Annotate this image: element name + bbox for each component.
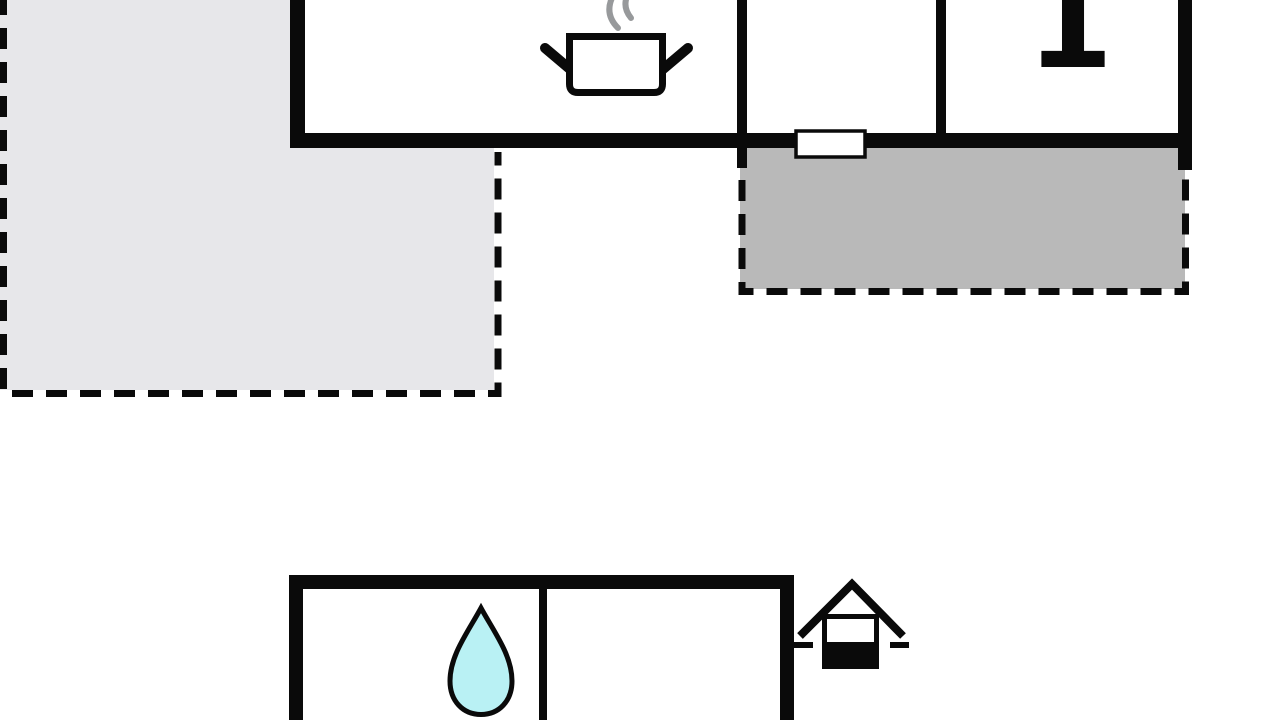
outbuilding [289, 575, 794, 720]
floor-plan: 1 [0, 0, 1280, 720]
pot-body [570, 37, 663, 93]
wall-left [290, 0, 305, 148]
room-number-label: 1 [1027, 0, 1113, 97]
entrance-house-base [822, 642, 879, 668]
outbuilding-wall-top [289, 575, 794, 589]
wall-interior-b [936, 0, 946, 133]
terrace-right [740, 148, 1186, 292]
terrace-right-fill [740, 148, 1185, 289]
floor-plan-svg: 1 [0, 0, 1280, 720]
outbuilding-wall-divider [539, 589, 547, 720]
wall-interior-a [737, 0, 747, 168]
window-marker [796, 131, 865, 157]
outbuilding-wall-right [780, 575, 794, 720]
window-rect [796, 131, 865, 157]
outbuilding-wall-left [289, 575, 303, 720]
